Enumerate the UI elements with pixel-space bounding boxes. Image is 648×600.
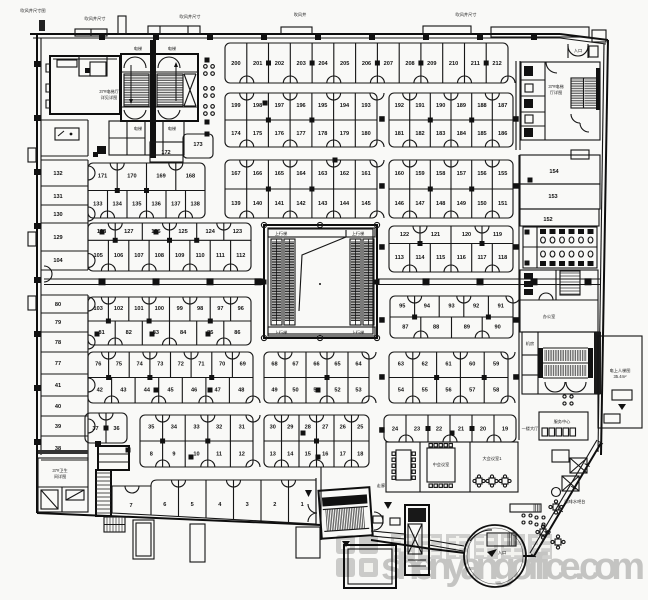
svg-text:15: 15	[305, 451, 311, 457]
svg-text:吹风井尺寸: 吹风井尺寸	[180, 13, 201, 20]
svg-text:68: 68	[271, 362, 277, 368]
svg-text:电梯: 电梯	[168, 45, 176, 52]
svg-text:57: 57	[469, 388, 475, 394]
svg-text:170: 170	[127, 173, 136, 179]
svg-text:184: 184	[457, 131, 467, 137]
svg-text:108: 108	[155, 253, 164, 259]
svg-text:125: 125	[178, 229, 187, 235]
svg-text:110: 110	[196, 253, 205, 259]
svg-text:174: 174	[231, 131, 241, 137]
svg-text:服务中心: 服务中心	[554, 418, 572, 425]
svg-text:180: 180	[361, 131, 370, 137]
svg-text:109: 109	[175, 253, 184, 259]
svg-text:上行梯: 上行梯	[352, 230, 365, 237]
svg-text:165: 165	[275, 171, 284, 177]
svg-text:167: 167	[231, 171, 240, 177]
svg-text:114: 114	[415, 255, 425, 261]
svg-text:75: 75	[116, 362, 122, 368]
svg-text:169: 169	[156, 173, 165, 179]
svg-text:141: 141	[275, 201, 284, 207]
svg-text:181: 181	[395, 131, 404, 137]
svg-text:177: 177	[296, 131, 305, 137]
svg-text:92: 92	[473, 303, 479, 309]
svg-text:129: 129	[53, 235, 62, 241]
svg-text:193: 193	[361, 103, 370, 109]
svg-text:120: 120	[462, 232, 471, 238]
svg-text:155: 155	[498, 171, 507, 177]
svg-text:32: 32	[216, 425, 222, 431]
svg-text:91: 91	[498, 303, 504, 309]
svg-text:212: 212	[492, 61, 501, 67]
svg-text:19: 19	[502, 427, 508, 433]
svg-text:吹风井尺寸图: 吹风井尺寸图	[20, 7, 45, 14]
svg-text:56: 56	[445, 388, 451, 394]
svg-text:162: 162	[340, 171, 349, 177]
svg-text:29: 29	[287, 425, 293, 431]
svg-text:吹风井尺寸: 吹风井尺寸	[85, 15, 106, 22]
svg-text:14: 14	[287, 451, 294, 457]
svg-text:间详图: 间详图	[54, 473, 67, 480]
svg-text:厅详图: 厅详图	[550, 89, 563, 96]
svg-text:9: 9	[172, 451, 175, 457]
svg-text:37#卫生: 37#卫生	[52, 467, 67, 473]
svg-text:152: 152	[543, 217, 552, 223]
svg-text:196: 196	[296, 103, 305, 109]
svg-text:39: 39	[55, 424, 61, 430]
svg-text:44: 44	[144, 388, 151, 394]
svg-text:200: 200	[231, 61, 240, 67]
svg-text:106: 106	[114, 253, 123, 259]
svg-text:67: 67	[292, 362, 298, 368]
svg-text:90: 90	[494, 325, 500, 331]
svg-text:78: 78	[55, 340, 61, 346]
svg-text:79: 79	[55, 320, 61, 326]
svg-text:130: 130	[53, 212, 62, 218]
svg-text:93: 93	[448, 303, 454, 309]
svg-text:60: 60	[469, 362, 475, 368]
svg-text:23: 23	[414, 427, 420, 433]
svg-text:66: 66	[313, 362, 319, 368]
svg-text:45: 45	[167, 388, 173, 394]
svg-text:166: 166	[253, 171, 262, 177]
svg-text:31: 31	[239, 425, 245, 431]
svg-text:上行梯: 上行梯	[275, 329, 288, 336]
svg-text:咖啡水吧台: 咖啡水吧台	[565, 498, 586, 505]
svg-text:18: 18	[357, 451, 363, 457]
svg-text:119: 119	[493, 232, 502, 238]
svg-text:182: 182	[415, 131, 424, 137]
svg-text:190: 190	[436, 103, 445, 109]
svg-text:147: 147	[415, 201, 424, 207]
svg-text:210: 210	[449, 61, 458, 67]
svg-text:161: 161	[361, 171, 370, 177]
svg-text:205: 205	[340, 61, 349, 67]
svg-text:185: 185	[477, 131, 486, 137]
svg-text:20: 20	[480, 427, 486, 433]
svg-text:吹风井: 吹风井	[294, 11, 307, 18]
svg-text:112: 112	[236, 253, 245, 259]
svg-text:80: 80	[55, 302, 61, 308]
svg-text:65: 65	[334, 362, 340, 368]
svg-text:中会议室: 中会议室	[433, 461, 450, 468]
svg-text:111: 111	[216, 253, 225, 259]
svg-text:99: 99	[177, 306, 183, 312]
svg-text:163: 163	[318, 171, 327, 177]
svg-text:电梯: 电梯	[134, 125, 142, 132]
svg-text:183: 183	[436, 131, 445, 137]
svg-text:37#电梯: 37#电梯	[548, 83, 563, 90]
svg-text:89: 89	[464, 325, 470, 331]
svg-text:72: 72	[178, 362, 184, 368]
svg-text:150: 150	[477, 201, 486, 207]
svg-text:54: 54	[398, 388, 405, 394]
svg-text:24: 24	[392, 427, 399, 433]
svg-text:207: 207	[384, 61, 393, 67]
svg-text:电梯: 电梯	[168, 125, 176, 132]
svg-text:87: 87	[402, 325, 408, 331]
svg-text:69: 69	[240, 362, 246, 368]
svg-text:25: 25	[357, 425, 363, 431]
svg-text:5: 5	[191, 502, 194, 508]
svg-text:211: 211	[471, 61, 480, 67]
svg-text:188: 188	[477, 103, 486, 109]
svg-text:172: 172	[161, 150, 170, 156]
svg-text:11: 11	[216, 451, 222, 457]
svg-text:121: 121	[431, 232, 440, 238]
svg-text:194: 194	[340, 103, 350, 109]
svg-text:吹风井尺寸: 吹风井尺寸	[456, 11, 477, 18]
svg-text:208: 208	[405, 61, 414, 67]
svg-text:84: 84	[180, 330, 187, 336]
svg-text:198: 198	[253, 103, 262, 109]
svg-text:28: 28	[305, 425, 311, 431]
svg-text:77: 77	[55, 361, 61, 367]
svg-text:大会议室1: 大会议室1	[482, 455, 502, 462]
svg-text:136: 136	[152, 202, 161, 208]
svg-text:98: 98	[197, 306, 203, 312]
svg-text:164: 164	[296, 171, 306, 177]
svg-text:203: 203	[297, 61, 306, 67]
svg-text:82: 82	[126, 330, 132, 336]
svg-text:140: 140	[253, 201, 262, 207]
svg-text:104: 104	[53, 258, 63, 264]
svg-text:12: 12	[239, 451, 245, 457]
svg-text:132: 132	[53, 171, 62, 177]
svg-text:一楼大厅: 一楼大厅	[522, 425, 539, 432]
svg-text:上行梯: 上行梯	[275, 230, 288, 237]
svg-text:202: 202	[275, 61, 284, 67]
svg-text:走廊: 走廊	[377, 482, 385, 489]
svg-text:61: 61	[445, 362, 451, 368]
svg-text:191: 191	[415, 103, 424, 109]
svg-text:35: 35	[148, 425, 154, 431]
svg-text:131: 131	[53, 194, 62, 200]
svg-text:7: 7	[129, 503, 132, 509]
svg-text:189: 189	[457, 103, 466, 109]
svg-text:70: 70	[219, 362, 225, 368]
svg-text:156: 156	[477, 171, 486, 177]
svg-text:58: 58	[493, 388, 499, 394]
svg-text:204: 204	[318, 61, 328, 67]
svg-text:96: 96	[238, 306, 244, 312]
svg-text:41: 41	[55, 383, 61, 389]
svg-text:详见详图: 详见详图	[101, 94, 118, 101]
svg-text:116: 116	[457, 255, 466, 261]
svg-text:97: 97	[217, 306, 223, 312]
svg-text:138: 138	[191, 202, 200, 208]
svg-text:134: 134	[113, 202, 123, 208]
svg-text:148: 148	[436, 201, 445, 207]
svg-text:6: 6	[163, 502, 166, 508]
svg-text:135: 135	[132, 202, 141, 208]
svg-text:206: 206	[362, 61, 371, 67]
svg-text:158: 158	[436, 171, 445, 177]
svg-text:195: 195	[318, 103, 327, 109]
svg-text:178: 178	[318, 131, 327, 137]
svg-text:186: 186	[498, 131, 507, 137]
svg-text:35.4m²: 35.4m²	[613, 374, 627, 379]
svg-text:入口: 入口	[574, 48, 582, 53]
svg-text:179: 179	[340, 131, 349, 137]
svg-text:33: 33	[193, 425, 199, 431]
svg-text:139: 139	[231, 201, 240, 207]
svg-text:55: 55	[422, 388, 428, 394]
svg-text:157: 157	[457, 171, 466, 177]
svg-text:47: 47	[214, 388, 220, 394]
svg-text:123: 123	[233, 229, 242, 235]
svg-text:53: 53	[355, 388, 361, 394]
svg-text:133: 133	[93, 202, 102, 208]
svg-text:192: 192	[395, 103, 404, 109]
svg-text:95: 95	[399, 303, 405, 309]
svg-text:88: 88	[433, 325, 439, 331]
svg-text:151: 151	[498, 201, 507, 207]
svg-text:43: 43	[120, 388, 126, 394]
svg-text:49: 49	[271, 388, 277, 394]
svg-text:146: 146	[395, 201, 404, 207]
svg-text:26: 26	[340, 425, 346, 431]
svg-text:3: 3	[246, 502, 249, 508]
svg-text:199: 199	[231, 103, 240, 109]
svg-text:86: 86	[234, 330, 240, 336]
svg-text:42: 42	[97, 388, 103, 394]
svg-text:10: 10	[193, 451, 199, 457]
svg-text:137: 137	[171, 202, 180, 208]
svg-text:144: 144	[340, 201, 350, 207]
svg-text:127: 127	[124, 229, 133, 235]
svg-text:办公室: 办公室	[543, 313, 556, 320]
svg-text:142: 142	[296, 201, 305, 207]
svg-text:197: 197	[275, 103, 284, 109]
svg-text:145: 145	[361, 201, 370, 207]
svg-text:160: 160	[395, 171, 404, 177]
svg-text:30: 30	[270, 425, 276, 431]
svg-text:154: 154	[549, 169, 559, 175]
svg-text:34: 34	[171, 425, 178, 431]
svg-text:115: 115	[436, 255, 445, 261]
svg-text:102: 102	[114, 306, 123, 312]
svg-text:16: 16	[322, 451, 328, 457]
svg-text:shenyangoffice.com: shenyangoffice.com	[381, 546, 645, 588]
svg-text:电上人梯图: 电上人梯图	[610, 367, 631, 374]
svg-text:173: 173	[193, 142, 202, 148]
svg-text:149: 149	[457, 201, 466, 207]
svg-text:62: 62	[422, 362, 428, 368]
svg-text:153: 153	[548, 194, 557, 200]
svg-text:48: 48	[238, 388, 244, 394]
svg-text:76: 76	[95, 362, 101, 368]
svg-text:52: 52	[334, 388, 340, 394]
svg-text:21: 21	[458, 427, 464, 433]
svg-text:94: 94	[424, 303, 431, 309]
svg-text:59: 59	[493, 362, 499, 368]
svg-text:176: 176	[275, 131, 284, 137]
svg-text:40: 40	[55, 404, 61, 410]
svg-text:37#电梯厅: 37#电梯厅	[99, 88, 119, 95]
svg-text:113: 113	[395, 255, 404, 261]
svg-text:22: 22	[436, 427, 442, 433]
svg-text:209: 209	[427, 61, 436, 67]
svg-text:143: 143	[318, 201, 327, 207]
svg-text:159: 159	[415, 171, 424, 177]
svg-text:27: 27	[322, 425, 328, 431]
svg-text:36: 36	[113, 426, 119, 432]
svg-text:117: 117	[477, 255, 486, 261]
svg-text:17: 17	[340, 451, 346, 457]
svg-text:171: 171	[98, 173, 107, 179]
svg-text:50: 50	[292, 388, 298, 394]
svg-text:13: 13	[270, 451, 276, 457]
svg-text:124: 124	[206, 229, 216, 235]
svg-text:101: 101	[134, 306, 143, 312]
svg-text:168: 168	[186, 173, 195, 179]
svg-text:机房: 机房	[526, 340, 534, 347]
svg-text:122: 122	[400, 232, 409, 238]
svg-text:107: 107	[134, 253, 143, 259]
svg-text:74: 74	[136, 362, 143, 368]
svg-text:64: 64	[355, 362, 362, 368]
svg-text:175: 175	[253, 131, 262, 137]
svg-text:118: 118	[498, 255, 507, 261]
svg-text:46: 46	[191, 388, 197, 394]
svg-text:71: 71	[198, 362, 204, 368]
svg-text:电梯: 电梯	[134, 45, 142, 52]
svg-text:上行梯: 上行梯	[352, 329, 365, 336]
svg-text:73: 73	[157, 362, 163, 368]
svg-text:2: 2	[273, 502, 276, 508]
svg-text:187: 187	[498, 103, 507, 109]
svg-text:63: 63	[398, 362, 404, 368]
svg-text:201: 201	[253, 61, 262, 67]
svg-text:100: 100	[155, 306, 164, 312]
svg-text:1: 1	[301, 502, 304, 508]
svg-text:8: 8	[150, 451, 153, 457]
